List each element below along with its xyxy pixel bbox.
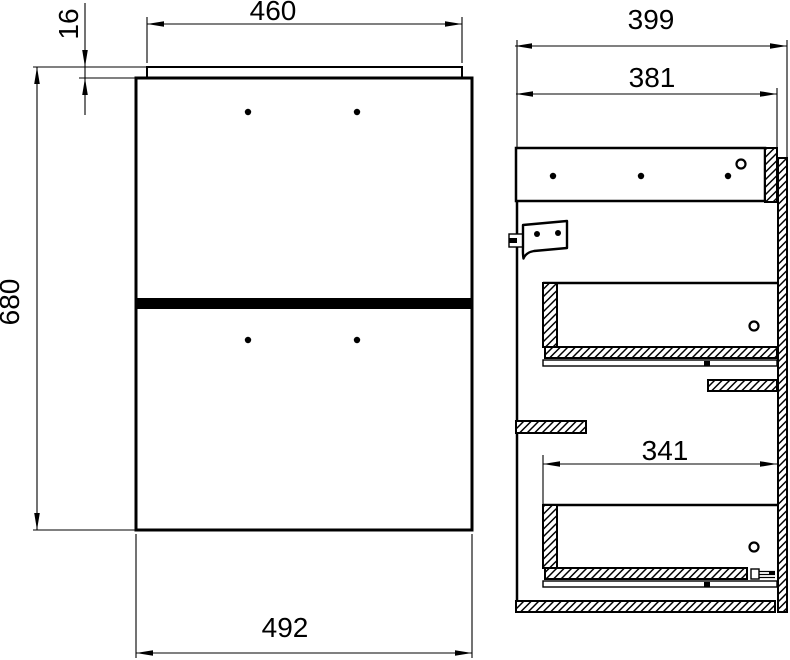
dim-label-overall-height: 680: [0, 279, 25, 326]
bottom-panel-section: [516, 601, 775, 612]
side-view: [509, 148, 787, 612]
upper-drawer-bottom-section: [545, 347, 777, 358]
back-panel-section: [778, 158, 787, 612]
lower-drawer-box: [543, 505, 777, 587]
slide-profile-block: [769, 571, 775, 575]
arrowhead: [770, 43, 787, 49]
dim-label-top-panel-width: 460: [250, 0, 297, 26]
arrowhead: [34, 513, 40, 530]
lower-drawer-side-hole: [750, 543, 759, 552]
handle-hole: [354, 109, 360, 115]
arrowhead: [136, 650, 153, 656]
dim-label-overall-depth: 399: [628, 4, 675, 35]
dim-label-carcass-depth: 381: [629, 62, 676, 93]
lower-drawer-slide-rail: [543, 581, 777, 587]
dim-label-top-panel-thickness: 16: [53, 8, 84, 39]
front-stretcher-section: [516, 421, 586, 433]
bracket-hole: [534, 231, 540, 237]
upper-drawer-side-hole: [750, 322, 759, 331]
arrowhead: [455, 650, 472, 656]
cabinet-technical-drawing: 460 16 680 492 399 381 341: [0, 0, 790, 660]
upper-slide-stop: [704, 361, 710, 366]
arrowhead: [82, 78, 88, 95]
rail-hole: [550, 173, 556, 179]
lower-slide-stop: [704, 582, 710, 587]
rail-large-hole: [737, 160, 746, 169]
lower-drawer-front-section: [543, 505, 557, 568]
top-panel: [147, 67, 462, 78]
upper-drawer-slide-rail: [543, 360, 777, 366]
handle-hole: [245, 337, 251, 343]
bracket-hole: [555, 230, 561, 236]
arrowhead: [34, 67, 40, 84]
lower-drawer-bottom-section: [545, 568, 747, 579]
rail-hole: [638, 173, 644, 179]
bracket-clip-tab: [509, 238, 517, 243]
dim-label-drawer-inner-depth: 341: [642, 435, 689, 466]
arrowhead: [760, 91, 777, 97]
rear-stretcher-section: [708, 380, 777, 391]
front-view: [136, 67, 472, 530]
handle-hole: [245, 109, 251, 115]
rear-rail-section: [765, 148, 777, 202]
handle-hole: [354, 337, 360, 343]
rail-hole: [725, 173, 731, 179]
bracket-body: [523, 221, 567, 259]
arrowhead: [760, 461, 777, 467]
arrowhead: [445, 21, 462, 27]
dim-label-front-width: 492: [262, 612, 309, 643]
upper-drawer-box: [543, 283, 777, 366]
arrowhead: [516, 91, 533, 97]
arrowhead: [147, 21, 164, 27]
upper-drawer-front-section: [543, 283, 557, 347]
technical-drawing-canvas: 460 16 680 492 399 381 341: [0, 0, 790, 660]
drawer-gap-divider: [136, 298, 472, 309]
arrowhead: [543, 461, 560, 467]
slide-connector: [751, 569, 759, 579]
arrowhead: [82, 50, 88, 67]
